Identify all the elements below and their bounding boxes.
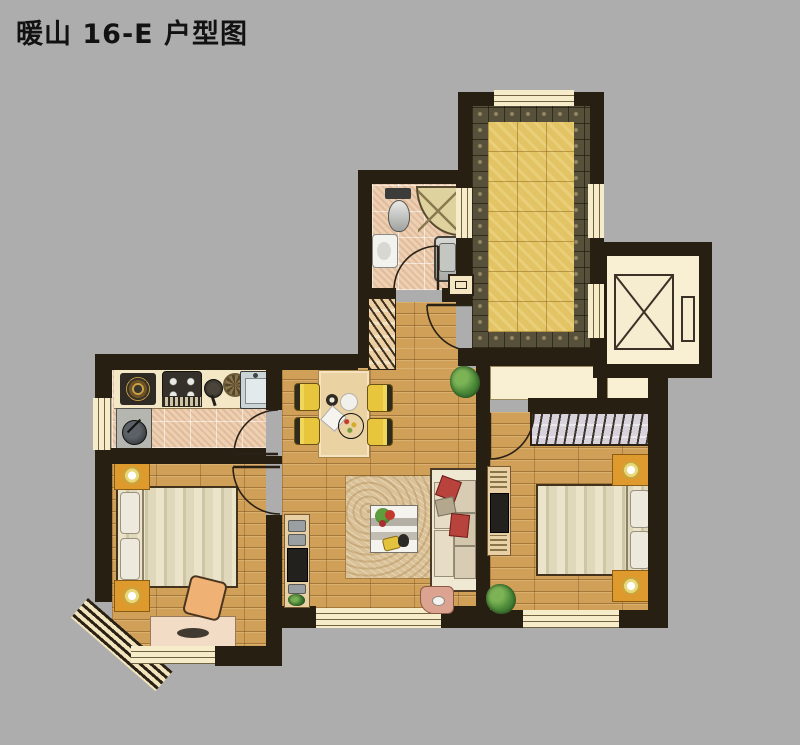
sofa-back-cushion bbox=[454, 546, 476, 579]
window bbox=[588, 184, 604, 238]
tv-screen bbox=[287, 548, 308, 582]
stove-grill bbox=[162, 396, 202, 407]
bed-right bbox=[536, 484, 654, 576]
washer-drum bbox=[439, 243, 456, 272]
terrace-floor-tiles bbox=[488, 122, 574, 332]
window bbox=[456, 188, 472, 238]
dining-chair bbox=[367, 384, 393, 412]
wall-segment bbox=[590, 92, 604, 184]
dining-chair bbox=[294, 417, 320, 445]
wall-segment bbox=[266, 456, 282, 464]
wall-segment bbox=[358, 170, 372, 302]
wall-segment bbox=[528, 398, 655, 412]
bedroom-left-door bbox=[233, 467, 280, 514]
pillow bbox=[120, 538, 140, 580]
entry-door bbox=[426, 304, 474, 352]
flower-red bbox=[379, 520, 386, 527]
toilet-tank bbox=[385, 188, 411, 199]
kitchen-door bbox=[234, 410, 278, 456]
niche-inner bbox=[455, 281, 467, 289]
kettle bbox=[398, 534, 409, 547]
wall-segment bbox=[215, 646, 282, 666]
wok-burner bbox=[120, 373, 156, 405]
av-slot bbox=[288, 584, 306, 594]
desk bbox=[150, 616, 236, 650]
sofa-seat-cushion bbox=[434, 530, 454, 577]
sofa bbox=[430, 468, 482, 592]
window bbox=[93, 398, 111, 450]
wall-segment bbox=[95, 450, 112, 602]
cabinet-hatch bbox=[490, 470, 507, 488]
bay-platform-1 bbox=[490, 366, 599, 400]
tv-screen bbox=[490, 493, 509, 533]
desk-handle bbox=[177, 628, 209, 638]
tv-cabinet-bedroom-right bbox=[487, 466, 511, 556]
wall-segment bbox=[619, 610, 668, 628]
side-table-dish bbox=[432, 596, 445, 606]
shower-cross-icon bbox=[418, 188, 458, 234]
floorplan bbox=[0, 0, 800, 745]
wardrobe-hangers bbox=[530, 412, 652, 446]
wall-segment bbox=[648, 366, 668, 628]
corner-shower bbox=[416, 186, 460, 236]
potted-plant bbox=[450, 366, 480, 398]
tv-cabinet-living bbox=[284, 514, 310, 608]
window bbox=[523, 610, 619, 628]
wall-segment bbox=[95, 354, 358, 370]
red-pillow bbox=[449, 513, 470, 538]
wall-niche bbox=[448, 274, 474, 296]
faucet-icon bbox=[253, 373, 258, 378]
window bbox=[131, 646, 215, 664]
bedroom-right-door bbox=[490, 413, 534, 459]
potted-plant bbox=[486, 584, 516, 614]
elevator-walls bbox=[593, 242, 712, 256]
nightstand-lamp bbox=[612, 454, 650, 486]
pillow bbox=[630, 531, 650, 569]
sink-basin bbox=[377, 242, 391, 260]
side-table-pink bbox=[420, 586, 454, 614]
wall-segment bbox=[266, 515, 282, 650]
wall-segment bbox=[95, 354, 112, 398]
sink-bowl bbox=[245, 378, 268, 404]
bathroom-door bbox=[394, 244, 440, 292]
shoe-cabinet bbox=[368, 298, 396, 370]
elevator-car-icon bbox=[614, 274, 678, 352]
nightstand-lamp bbox=[114, 580, 150, 612]
coffee-table bbox=[370, 505, 418, 553]
wall-segment bbox=[358, 170, 472, 184]
table-food-plate bbox=[338, 413, 364, 439]
window bbox=[588, 284, 604, 338]
small-plant bbox=[288, 594, 305, 606]
flower-red bbox=[385, 510, 395, 520]
elevator-door-marker bbox=[681, 296, 695, 342]
cabinet-hatch bbox=[490, 535, 507, 551]
window bbox=[494, 90, 574, 106]
wall-segment bbox=[282, 606, 316, 628]
av-slot bbox=[288, 520, 306, 532]
av-slot bbox=[288, 534, 306, 546]
pillow bbox=[120, 492, 140, 534]
dining-chair bbox=[294, 383, 320, 411]
nightstand-lamp bbox=[612, 570, 650, 602]
nightstand-lamp bbox=[114, 461, 150, 490]
duvet-fold bbox=[626, 486, 628, 574]
pillow bbox=[630, 490, 650, 528]
window bbox=[316, 608, 441, 628]
dining-chair bbox=[367, 418, 393, 446]
wall-segment bbox=[266, 354, 282, 410]
bed-left bbox=[116, 486, 238, 588]
duvet-fold bbox=[142, 488, 144, 586]
table-plate bbox=[340, 393, 358, 411]
elevator-walls bbox=[699, 242, 712, 378]
toilet-bowl bbox=[388, 200, 410, 232]
